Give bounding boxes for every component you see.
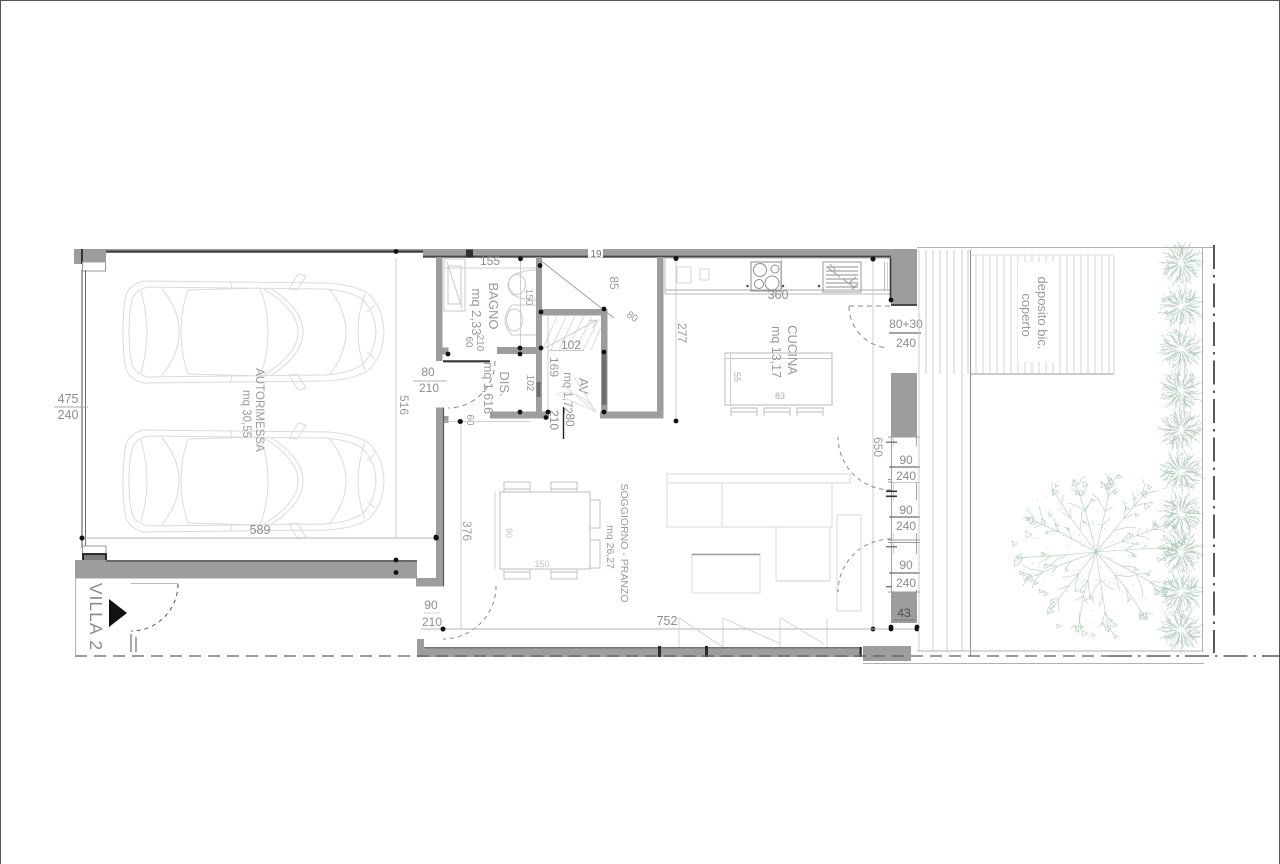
svg-text:35: 35 [398, 562, 408, 572]
svg-text:80+30: 80+30 [889, 317, 923, 331]
svg-text:90: 90 [424, 598, 438, 612]
svg-text:mq 13,17: mq 13,17 [769, 326, 783, 378]
svg-text:150: 150 [523, 289, 534, 306]
svg-text:90: 90 [899, 453, 913, 467]
svg-text:90: 90 [504, 528, 514, 538]
svg-text:240: 240 [896, 469, 916, 483]
svg-text:mq 26,27: mq 26,27 [604, 525, 616, 569]
svg-text:VILLA 2: VILLA 2 [86, 583, 106, 651]
svg-text:240: 240 [896, 519, 916, 533]
svg-text:752: 752 [657, 614, 678, 628]
svg-text:SOGGIORNO - PRANZO: SOGGIORNO - PRANZO [618, 483, 630, 602]
svg-text:150: 150 [534, 559, 549, 569]
svg-text:AUTORIMESSA: AUTORIMESSA [253, 368, 265, 452]
svg-text:240: 240 [896, 336, 916, 350]
svg-text:60: 60 [464, 414, 475, 426]
svg-text:102: 102 [524, 375, 535, 392]
svg-text:376: 376 [460, 521, 474, 541]
svg-text:360: 360 [768, 288, 789, 302]
svg-text:55: 55 [732, 372, 742, 382]
svg-text:210: 210 [419, 381, 439, 395]
svg-text:90: 90 [899, 503, 913, 517]
svg-text:516: 516 [397, 395, 411, 415]
svg-text:80: 80 [421, 365, 435, 379]
svg-text:80: 80 [624, 309, 640, 325]
svg-text:60: 60 [463, 336, 474, 348]
svg-text:475: 475 [58, 392, 79, 406]
svg-text:BAGNO: BAGNO [486, 283, 501, 330]
svg-text:102: 102 [561, 338, 581, 352]
svg-text:155: 155 [480, 254, 500, 268]
svg-text:240: 240 [896, 576, 916, 590]
svg-text:210: 210 [422, 615, 442, 629]
svg-text:mq 1,616: mq 1,616 [481, 362, 495, 414]
svg-text:83: 83 [775, 391, 785, 401]
svg-text:80: 80 [563, 413, 577, 427]
svg-text:mq 2,33: mq 2,33 [469, 289, 484, 336]
svg-text:19: 19 [590, 249, 602, 260]
svg-text:169: 169 [547, 357, 561, 377]
svg-text:DIS.: DIS. [497, 371, 512, 396]
svg-text:90: 90 [899, 558, 913, 572]
svg-text:mq 30,55: mq 30,55 [240, 390, 252, 438]
svg-text:43: 43 [897, 606, 911, 620]
svg-text:650: 650 [871, 437, 885, 457]
svg-text:coperto: coperto [1019, 293, 1034, 336]
svg-text:240: 240 [58, 408, 79, 422]
svg-text:210: 210 [474, 335, 485, 352]
svg-text:CUCINA: CUCINA [785, 325, 800, 375]
svg-text:589: 589 [250, 523, 271, 537]
svg-text:deposito bic.: deposito bic. [1035, 277, 1050, 350]
svg-text:277: 277 [675, 323, 689, 343]
svg-text:85: 85 [607, 276, 621, 290]
